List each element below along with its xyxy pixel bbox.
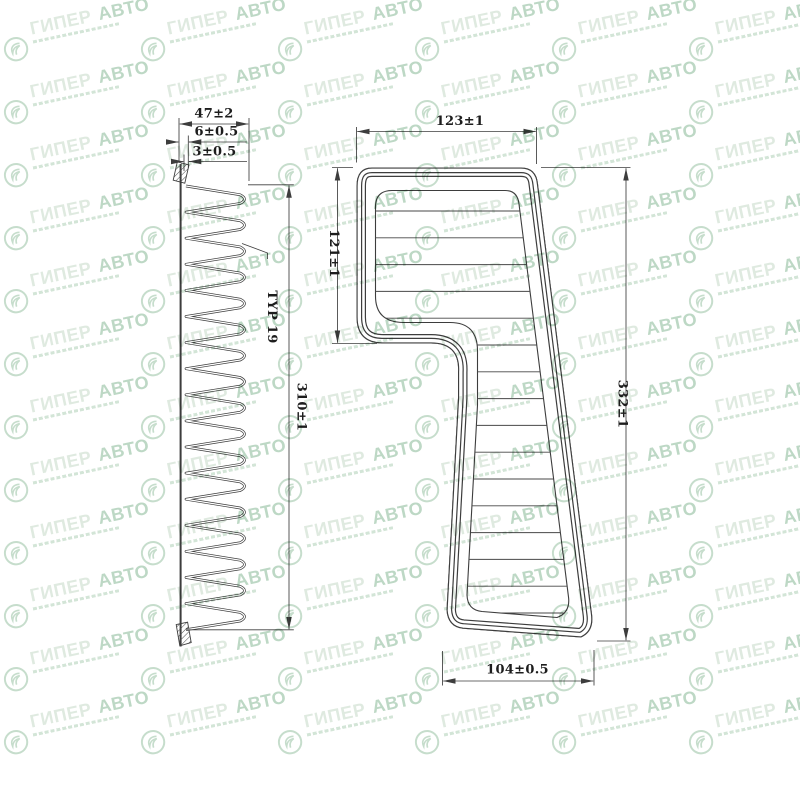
paper-background: [0, 0, 800, 800]
dim-upper-height: 121±1: [326, 229, 341, 278]
dim-bottom-width: 104±0.5: [486, 663, 549, 678]
dim-overall-length: 332±1: [615, 380, 630, 429]
dim-side-length: 310±1: [294, 383, 309, 432]
dim-top-width: 123±1: [436, 114, 485, 129]
dim-side-depth: 47±2: [194, 107, 233, 122]
technical-drawing: 47±2 6±0.5 3±0.5 310±1 TYP 19: [0, 0, 800, 800]
dim-seal-height: 6±0.5: [194, 125, 238, 140]
drawing-canvas: 47±2 6±0.5 3±0.5 310±1 TYP 19: [0, 0, 800, 800]
dim-seal-lip: 3±0.5: [192, 145, 236, 160]
pleat-count-note: TYP 19: [264, 290, 279, 343]
